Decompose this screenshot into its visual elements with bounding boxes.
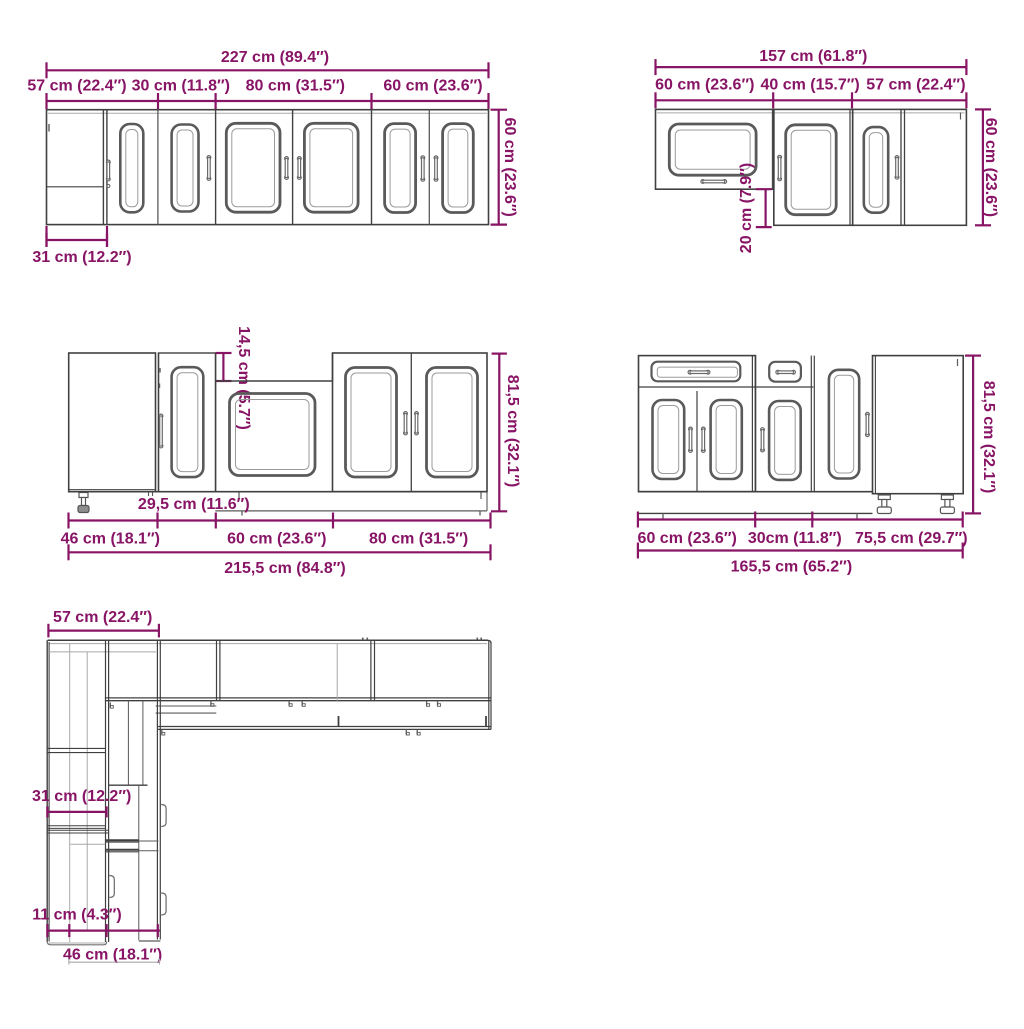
svg-text:215,5 cm (84.8″): 215,5 cm (84.8″) <box>224 560 346 577</box>
svg-text:81,5 cm (32.1″): 81,5 cm (32.1″) <box>504 375 521 488</box>
svg-text:31 cm (12.2″): 31 cm (12.2″) <box>32 249 131 266</box>
svg-text:46 cm (18.1″): 46 cm (18.1″) <box>63 946 162 963</box>
svg-text:14,5 cm (5.7″): 14,5 cm (5.7″) <box>235 326 252 430</box>
svg-text:57 cm (22.4″): 57 cm (22.4″) <box>27 77 126 94</box>
svg-text:81,5 cm (32.1″): 81,5 cm (32.1″) <box>980 381 997 494</box>
svg-text:20 cm (7.9″): 20 cm (7.9″) <box>738 163 755 253</box>
svg-text:40 cm (15.7″): 40 cm (15.7″) <box>760 76 859 93</box>
svg-text:31 cm (12.2″): 31 cm (12.2″) <box>32 788 131 805</box>
svg-text:57 cm (22.4″): 57 cm (22.4″) <box>866 76 965 93</box>
svg-text:60 cm (23.6″): 60 cm (23.6″) <box>383 77 482 94</box>
svg-text:157 cm (61.8″): 157 cm (61.8″) <box>759 48 867 65</box>
svg-text:75,5 cm (29.7″): 75,5 cm (29.7″) <box>855 530 968 547</box>
svg-text:29,5 cm (11.6″): 29,5 cm (11.6″) <box>138 496 250 513</box>
svg-text:60 cm (23.6″): 60 cm (23.6″) <box>638 530 737 547</box>
svg-text:80 cm (31.5″): 80 cm (31.5″) <box>369 530 468 547</box>
svg-text:165,5 cm (65.2″): 165,5 cm (65.2″) <box>731 559 853 576</box>
svg-text:57 cm (22.4″): 57 cm (22.4″) <box>53 609 152 626</box>
svg-text:80 cm (31.5″): 80 cm (31.5″) <box>246 77 345 94</box>
svg-text:30cm (11.8″): 30cm (11.8″) <box>748 530 842 547</box>
svg-text:60 cm (23.6″): 60 cm (23.6″) <box>501 118 518 217</box>
svg-text:60 cm (23.6″): 60 cm (23.6″) <box>655 76 754 93</box>
svg-text:60 cm (23.6″): 60 cm (23.6″) <box>982 118 999 217</box>
svg-text:11 cm (4.3″): 11 cm (4.3″) <box>32 906 122 923</box>
svg-text:46 cm (18.1″): 46 cm (18.1″) <box>61 530 160 547</box>
svg-text:227 cm (89.4″): 227 cm (89.4″) <box>221 49 329 66</box>
svg-text:60 cm (23.6″): 60 cm (23.6″) <box>227 530 326 547</box>
svg-text:30 cm (11.8″): 30 cm (11.8″) <box>132 77 230 94</box>
